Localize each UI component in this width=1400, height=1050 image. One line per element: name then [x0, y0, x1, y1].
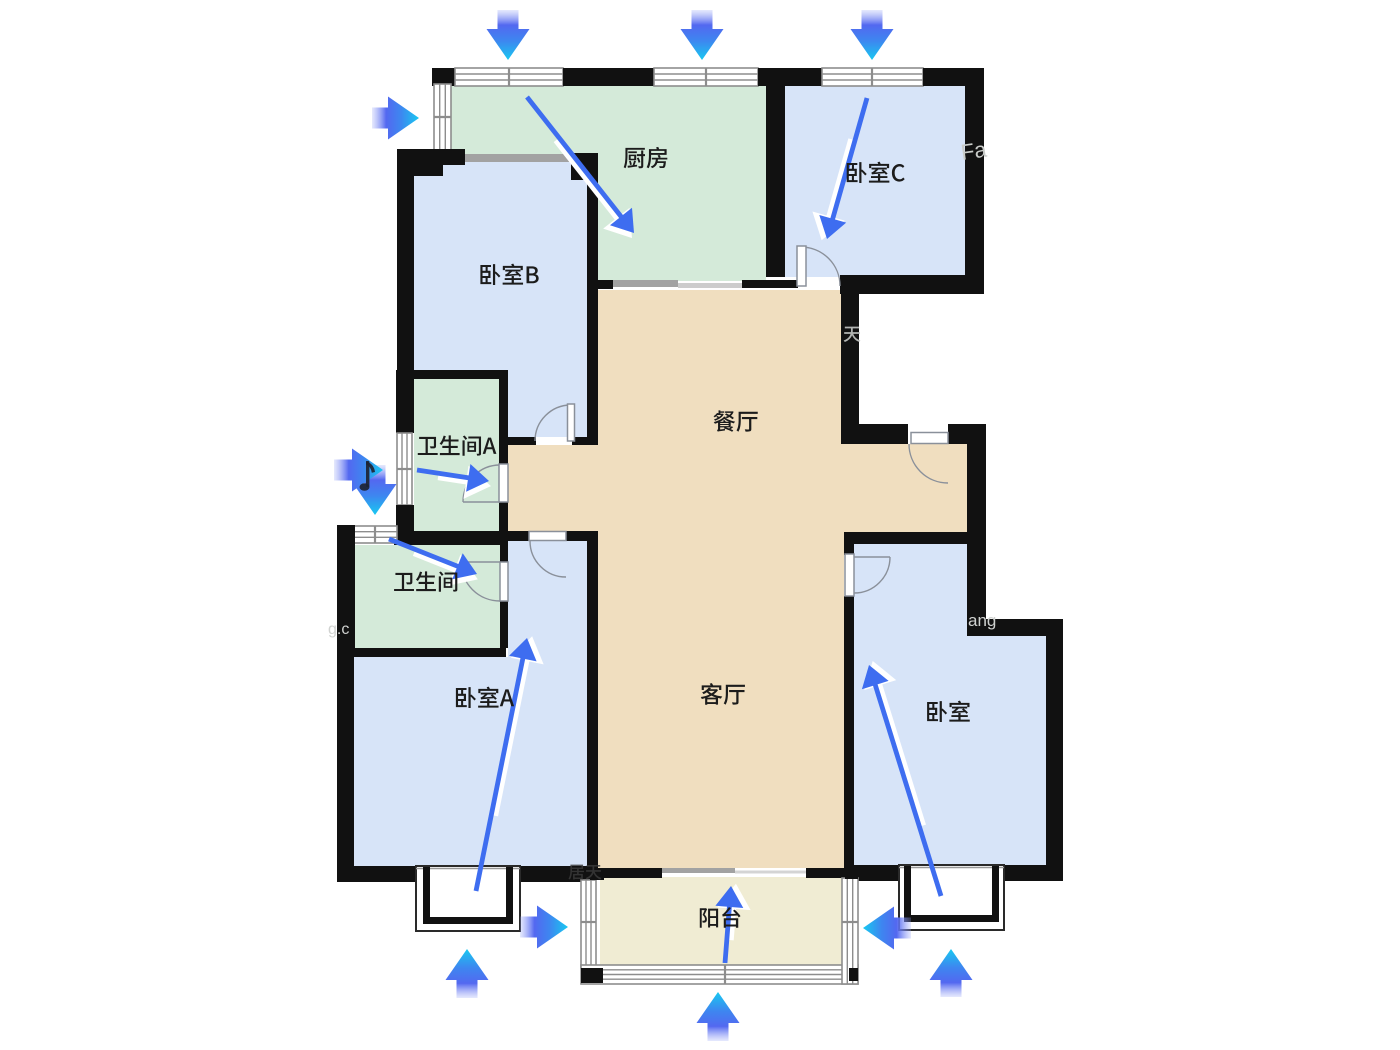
svg-text:g.c: g.c — [328, 621, 349, 638]
svg-text:ang: ang — [968, 611, 996, 630]
svg-text:Fa: Fa — [959, 137, 989, 165]
